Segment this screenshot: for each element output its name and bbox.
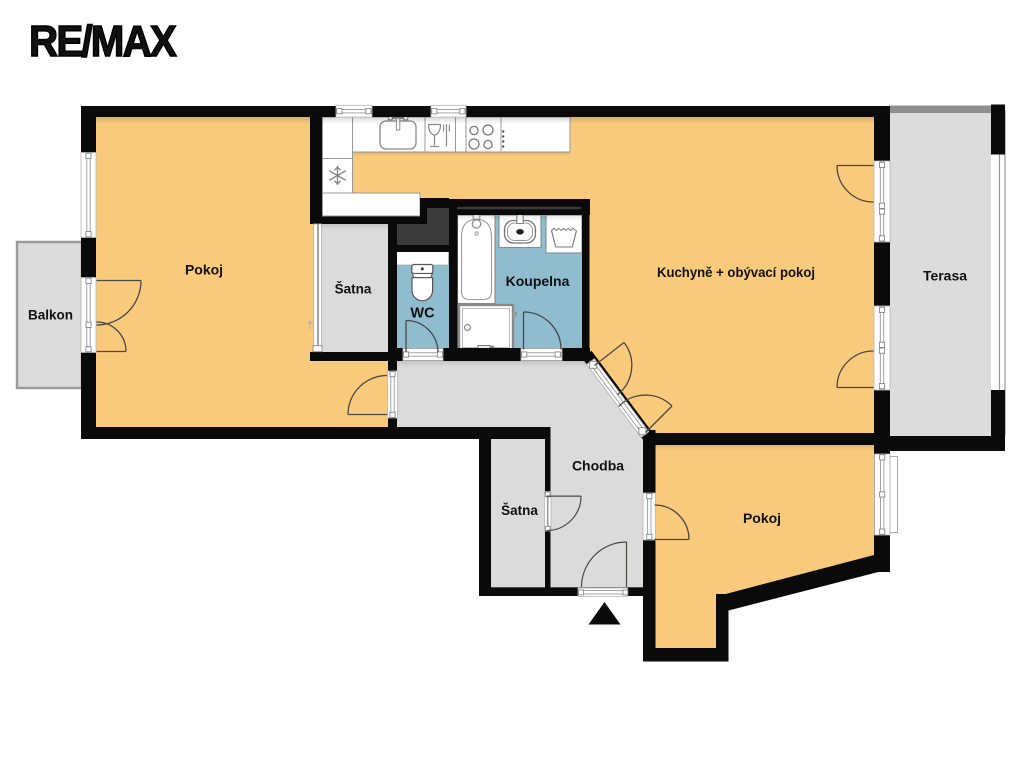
svg-text:Pokoj: Pokoj [185,262,223,278]
svg-text:Chodba: Chodba [572,458,624,474]
svg-text:WC: WC [410,306,435,322]
svg-text:RE/MAX: RE/MAX [29,17,177,66]
svg-text:Balkon: Balkon [28,308,73,323]
svg-text:Terasa: Terasa [923,268,967,284]
svg-text:Koupelna: Koupelna [506,273,570,289]
svg-text:Pokoj: Pokoj [743,510,781,526]
svg-text:Šatna: Šatna [335,282,372,297]
svg-text:Šatna: Šatna [501,503,538,518]
svg-text:Kuchyně + obývací pokoj: Kuchyně + obývací pokoj [657,264,815,280]
